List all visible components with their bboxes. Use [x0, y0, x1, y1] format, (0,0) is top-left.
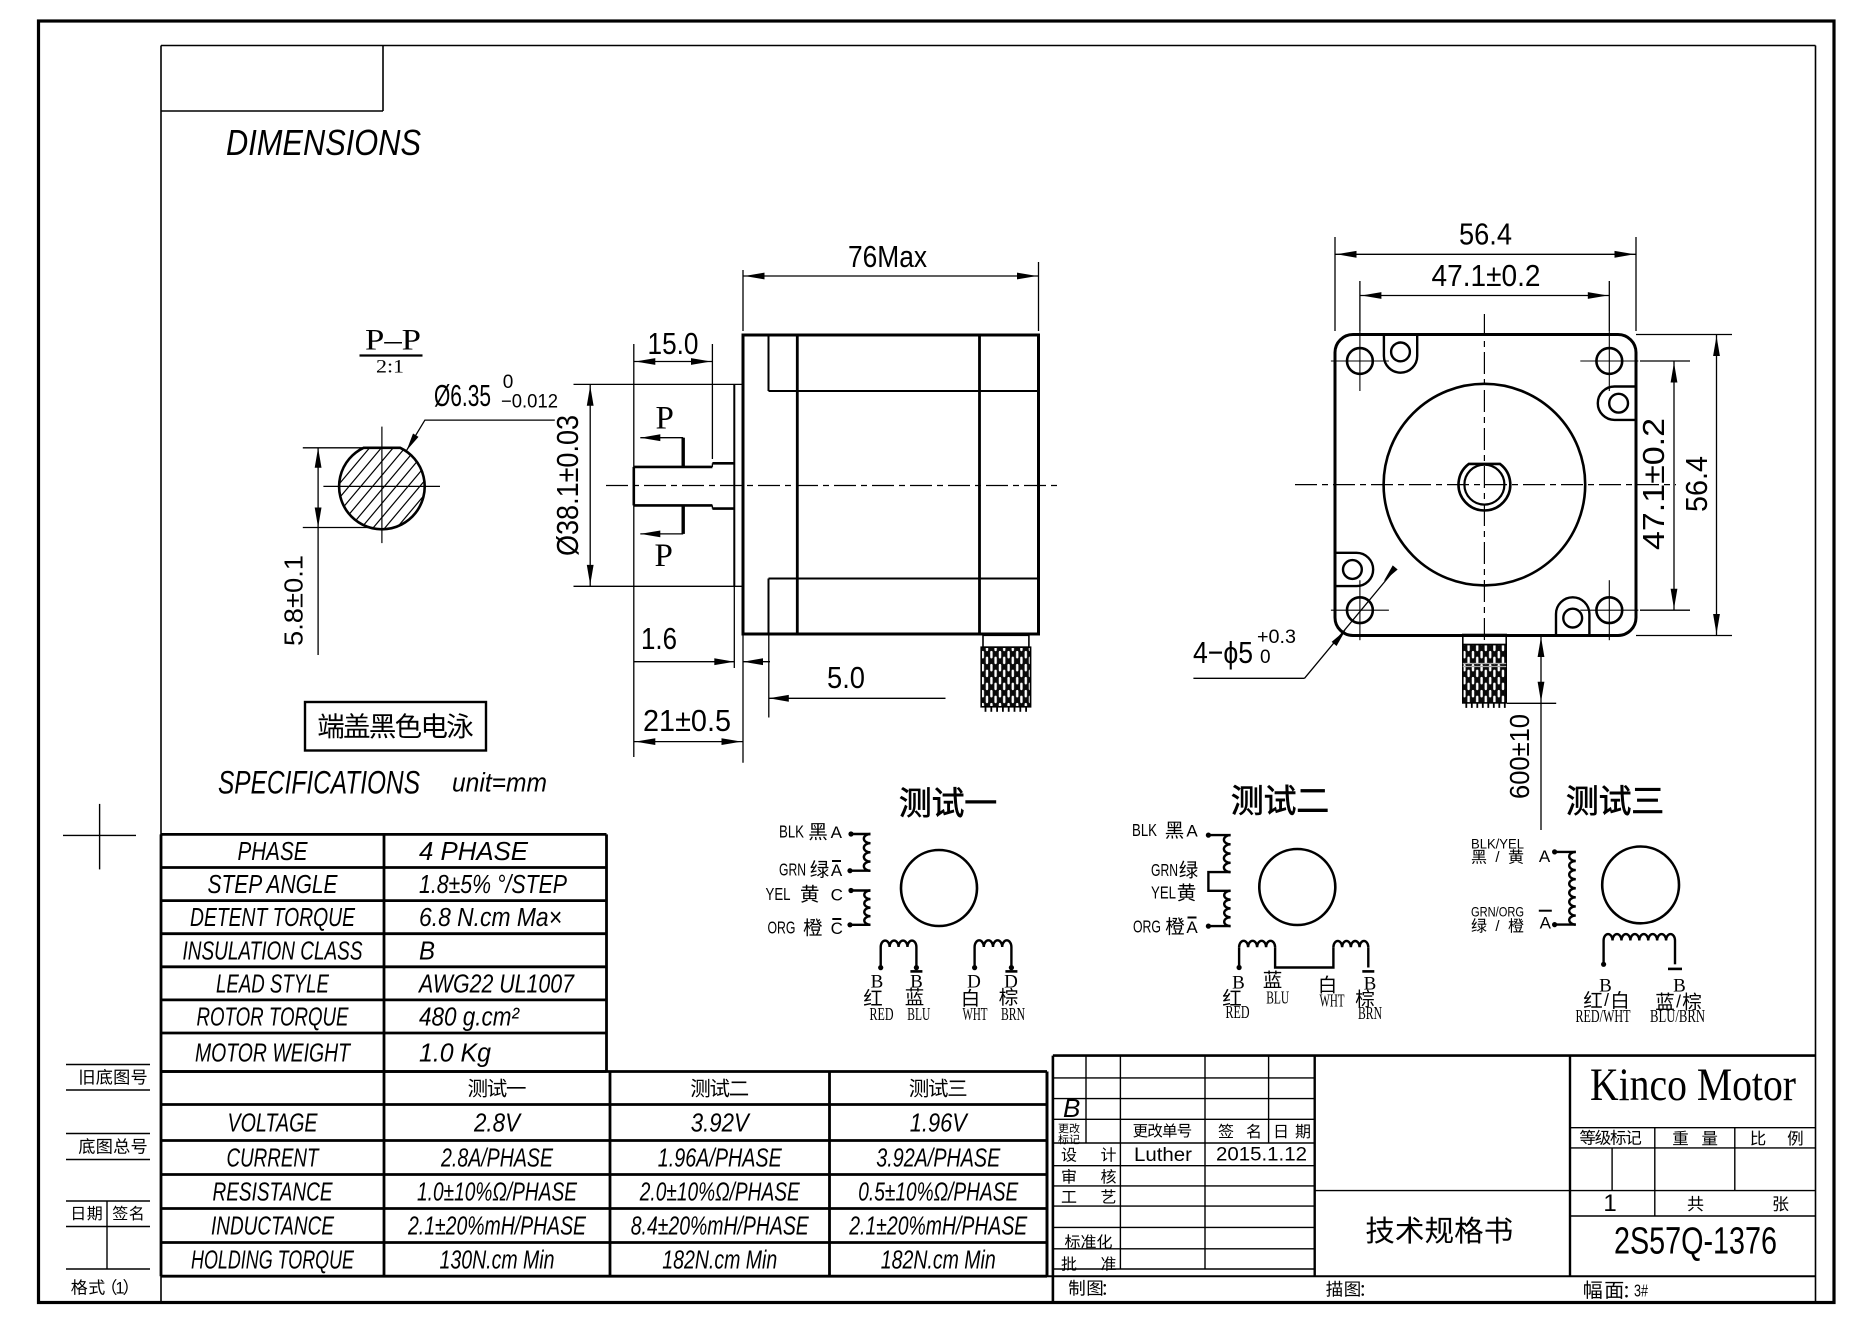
svg-text:21±0.5: 21±0.5 [643, 703, 731, 738]
svg-text:Luther: Luther [1134, 1144, 1193, 1166]
svg-text:PHASE: PHASE [238, 838, 309, 866]
svg-text:76Max: 76Max [848, 239, 927, 274]
svg-text:LEAD STYLE: LEAD STYLE [216, 970, 330, 998]
svg-text:RESISTANCE: RESISTANCE [213, 1179, 334, 1207]
svg-text:Ø6.35: Ø6.35 [434, 378, 491, 413]
svg-text:2.8V: 2.8V [473, 1110, 522, 1138]
svg-text:2.0±10%Ω/PHASE: 2.0±10%Ω/PHASE [639, 1179, 800, 1207]
svg-text:B: B [871, 972, 884, 993]
svg-text:HOLDING TORQUE: HOLDING TORQUE [191, 1246, 355, 1274]
svg-text:INSULATION CLASS: INSULATION CLASS [183, 937, 363, 965]
svg-text:P: P [656, 401, 674, 437]
svg-text:4−ϕ5: 4−ϕ5 [1193, 635, 1253, 670]
svg-text:BLK: BLK [779, 822, 804, 842]
svg-text:47.1±0.2: 47.1±0.2 [1636, 418, 1671, 550]
svg-text:RED: RED [1226, 1002, 1250, 1022]
svg-text:Kinco Motor: Kinco Motor [1590, 1059, 1796, 1111]
svg-text:2.1±20%mH/PHASE: 2.1±20%mH/PHASE [848, 1213, 1028, 1241]
svg-text:1.96V: 1.96V [910, 1110, 969, 1138]
svg-text:Ø38.1±0.03: Ø38.1±0.03 [550, 415, 585, 556]
svg-text:2:1: 2:1 [376, 357, 404, 378]
svg-text:C: C [831, 886, 843, 905]
svg-text:ROTOR TORQUE: ROTOR TORQUE [197, 1003, 350, 1031]
svg-text:+0.3: +0.3 [1257, 627, 1296, 648]
svg-text:1: 1 [1603, 1190, 1616, 1217]
svg-text:VOLTAGE: VOLTAGE [228, 1110, 319, 1138]
svg-text:GRN/ORG: GRN/ORG [1471, 903, 1524, 919]
svg-text:GRN: GRN [779, 859, 806, 879]
svg-text:B: B [1232, 973, 1245, 994]
svg-text:unit=mm: unit=mm [452, 768, 547, 798]
svg-text:600±10: 600±10 [1504, 714, 1535, 799]
svg-text:1.96A/PHASE: 1.96A/PHASE [658, 1145, 783, 1173]
svg-text:3.92A/PHASE: 3.92A/PHASE [876, 1145, 1001, 1173]
svg-text:3#: 3# [1634, 1281, 1648, 1301]
svg-text:B: B [419, 937, 435, 965]
svg-text:15.0: 15.0 [648, 326, 699, 361]
svg-text:ORG: ORG [768, 918, 796, 938]
svg-text:−0.012: −0.012 [501, 391, 558, 412]
svg-text:2.1±20%mH/PHASE: 2.1±20%mH/PHASE [407, 1213, 587, 1241]
svg-text:DIMENSIONS: DIMENSIONS [226, 122, 421, 163]
svg-text:RED/WHT: RED/WHT [1576, 1006, 1631, 1026]
svg-text:P: P [655, 538, 673, 574]
svg-text:B: B [1364, 974, 1377, 995]
svg-text:0: 0 [1260, 647, 1271, 668]
svg-text:182N.cm Min: 182N.cm Min [662, 1246, 777, 1274]
svg-text:5.0: 5.0 [827, 660, 865, 695]
svg-text:BLU: BLU [1266, 988, 1289, 1008]
svg-text:BRN: BRN [1358, 1003, 1382, 1023]
svg-text:A: A [1186, 822, 1198, 841]
svg-text:1: 1 [115, 1280, 124, 1298]
svg-text:CURRENT: CURRENT [227, 1145, 321, 1173]
svg-text:130N.cm Min: 130N.cm Min [440, 1246, 555, 1274]
svg-text:RED: RED [870, 1004, 894, 1024]
svg-text:56.4: 56.4 [1459, 217, 1512, 252]
svg-text:A: A [831, 861, 843, 880]
svg-text:BLU: BLU [907, 1004, 930, 1024]
svg-text:2015.1.12: 2015.1.12 [1216, 1144, 1307, 1166]
svg-text:ORG: ORG [1133, 917, 1161, 937]
svg-text:DETENT TORQUE: DETENT TORQUE [190, 904, 356, 932]
svg-text:3.92V: 3.92V [691, 1110, 751, 1138]
svg-text:YEL: YEL [766, 884, 791, 904]
svg-text:BLU/BRN: BLU/BRN [1650, 1006, 1705, 1026]
svg-text:C: C [831, 919, 843, 938]
svg-text:WHT: WHT [1320, 991, 1345, 1011]
svg-text:A: A [1186, 918, 1198, 937]
svg-text:WHT: WHT [963, 1004, 988, 1024]
svg-text:YEL: YEL [1151, 883, 1176, 903]
svg-text:INDUCTANCE: INDUCTANCE [211, 1213, 335, 1241]
svg-text:1.0 Kg: 1.0 Kg [419, 1039, 491, 1067]
svg-text:0.5±10%Ω/PHASE: 0.5±10%Ω/PHASE [858, 1179, 1019, 1207]
svg-text:6.8 N.cm Ma×: 6.8 N.cm Ma× [419, 904, 562, 932]
svg-text:SPECIFICATIONS: SPECIFICATIONS [218, 765, 420, 801]
svg-text:0: 0 [503, 372, 514, 393]
svg-text:A: A [1540, 914, 1552, 933]
svg-text:1.0±10%Ω/PHASE: 1.0±10%Ω/PHASE [417, 1179, 578, 1207]
svg-text:1.8±5% °/STEP: 1.8±5% °/STEP [419, 871, 567, 899]
svg-text:B: B [1063, 1093, 1080, 1123]
svg-text:480 g.cm²: 480 g.cm² [419, 1003, 520, 1031]
svg-text:BLK: BLK [1132, 820, 1157, 840]
svg-text:5.8±0.1: 5.8±0.1 [279, 555, 309, 646]
svg-text:2.8A/PHASE: 2.8A/PHASE [440, 1145, 554, 1173]
svg-text:2S57Q-1376: 2S57Q-1376 [1614, 1221, 1777, 1263]
svg-text:D: D [967, 972, 981, 993]
svg-text:4 PHASE: 4 PHASE [419, 838, 529, 866]
svg-text:1.6: 1.6 [641, 621, 677, 656]
svg-text:47.1±0.2: 47.1±0.2 [1432, 258, 1541, 293]
svg-text:P–P: P–P [365, 324, 421, 357]
svg-text:56.4: 56.4 [1679, 456, 1714, 512]
svg-text:A: A [1539, 847, 1551, 866]
svg-text:8.4±20%mH/PHASE: 8.4±20%mH/PHASE [631, 1213, 810, 1241]
svg-text:AWG22 UL1007: AWG22 UL1007 [417, 970, 574, 998]
svg-text:MOTOR WEIGHT: MOTOR WEIGHT [195, 1039, 352, 1067]
svg-text:STEP ANGLE: STEP ANGLE [208, 871, 339, 899]
svg-text:GRN: GRN [1151, 860, 1178, 880]
svg-text:BRN: BRN [1001, 1004, 1025, 1024]
svg-text:A: A [831, 823, 843, 842]
svg-text:182N.cm Min: 182N.cm Min [881, 1246, 996, 1274]
